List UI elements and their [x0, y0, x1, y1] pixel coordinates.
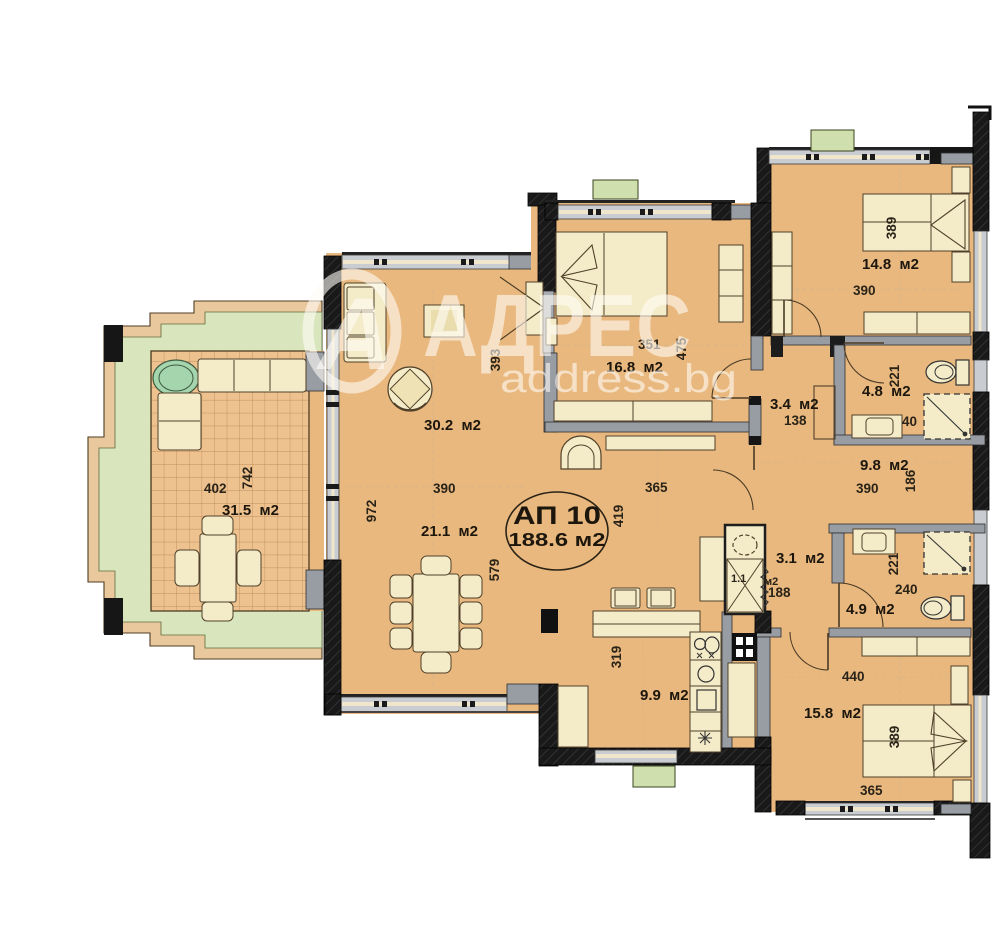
svg-text:3.1 м2: 3.1 м2 — [776, 550, 825, 567]
svg-text:186: 186 — [903, 469, 918, 492]
svg-text:40: 40 — [902, 414, 917, 429]
svg-text:319: 319 — [609, 646, 624, 669]
svg-text:972: 972 — [364, 500, 379, 523]
svg-text:138: 138 — [784, 413, 807, 428]
svg-text:3.4 м2: 3.4 м2 — [770, 396, 819, 413]
svg-text:1.1: 1.1 — [731, 573, 746, 585]
svg-text:390: 390 — [856, 481, 879, 496]
svg-text:390: 390 — [853, 283, 876, 298]
svg-text:440: 440 — [842, 669, 865, 684]
svg-text:188.6 м2: 188.6 м2 — [509, 530, 606, 550]
svg-text:188: 188 — [768, 585, 791, 600]
svg-text:4.9 м2: 4.9 м2 — [846, 601, 895, 618]
svg-text:address.bg: address.bg — [500, 357, 737, 401]
svg-text:221: 221 — [887, 364, 902, 387]
svg-text:А: А — [315, 277, 392, 391]
svg-text:АП 10: АП 10 — [513, 502, 601, 530]
svg-text:9.8 м2: 9.8 м2 — [860, 457, 909, 474]
svg-text:389: 389 — [887, 726, 902, 749]
svg-text:21.1 м2: 21.1 м2 — [421, 523, 478, 540]
svg-text:365: 365 — [860, 783, 883, 798]
svg-text:402: 402 — [204, 481, 227, 496]
svg-text:365: 365 — [645, 480, 668, 495]
svg-text:30.2 м2: 30.2 м2 — [424, 417, 481, 434]
svg-text:742: 742 — [240, 467, 255, 490]
svg-text:9.9 м2: 9.9 м2 — [640, 687, 689, 704]
svg-text:579: 579 — [487, 559, 502, 582]
svg-text:221: 221 — [886, 552, 901, 575]
svg-text:14.8 м2: 14.8 м2 — [862, 256, 919, 273]
svg-text:419: 419 — [611, 505, 626, 528]
svg-text:390: 390 — [433, 481, 456, 496]
svg-text:15.8 м2: 15.8 м2 — [804, 705, 861, 722]
svg-text:389: 389 — [884, 217, 899, 240]
svg-text:31.5 м2: 31.5 м2 — [222, 502, 279, 519]
svg-text:240: 240 — [895, 582, 918, 597]
